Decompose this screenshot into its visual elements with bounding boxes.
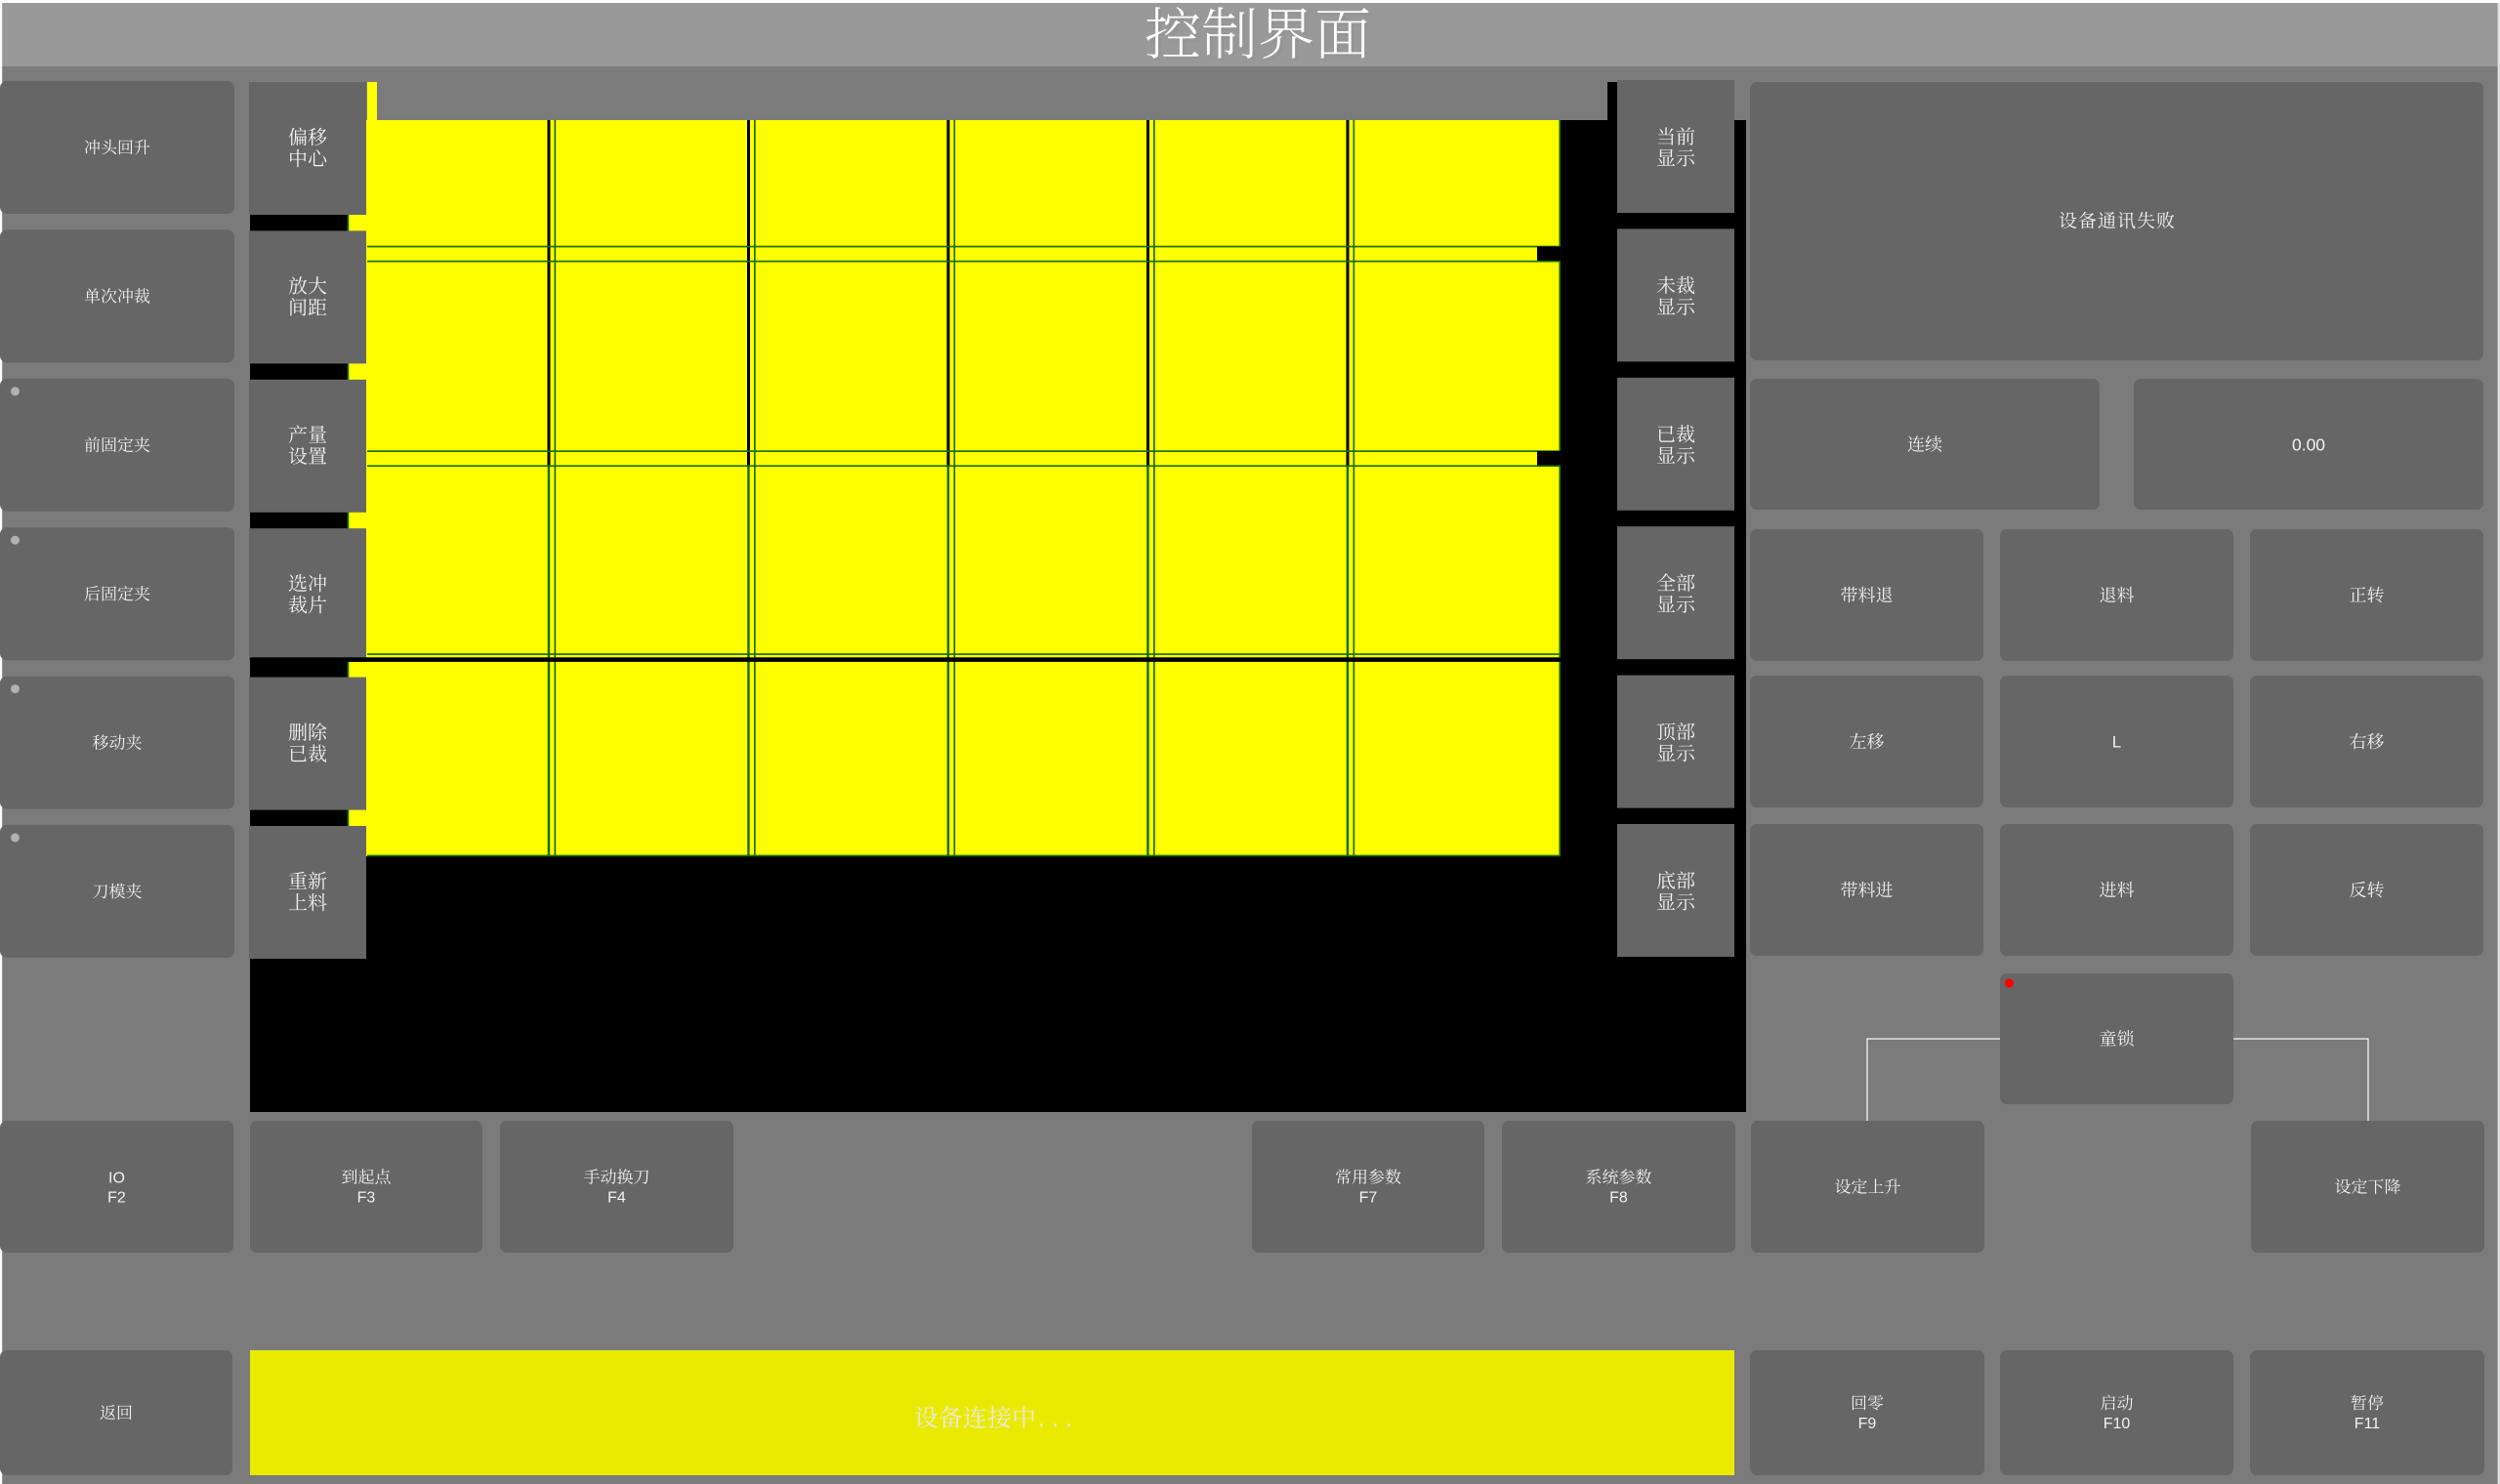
svg-text:IO: IO — [108, 1170, 125, 1186]
svg-text:...: ... — [1038, 1405, 1079, 1432]
svg-text:F4: F4 — [607, 1189, 626, 1206]
svg-text:F9: F9 — [1858, 1416, 1877, 1432]
svg-text:F3: F3 — [357, 1189, 376, 1206]
svg-text:0.00: 0.00 — [2292, 434, 2325, 454]
svg-text:L: L — [2112, 733, 2121, 752]
svg-text:F11: F11 — [2354, 1416, 2380, 1432]
svg-text:F8: F8 — [1609, 1189, 1628, 1206]
svg-text:F7: F7 — [1359, 1189, 1378, 1206]
svg-text:F2: F2 — [107, 1189, 126, 1206]
svg-text:F10: F10 — [2104, 1416, 2131, 1432]
